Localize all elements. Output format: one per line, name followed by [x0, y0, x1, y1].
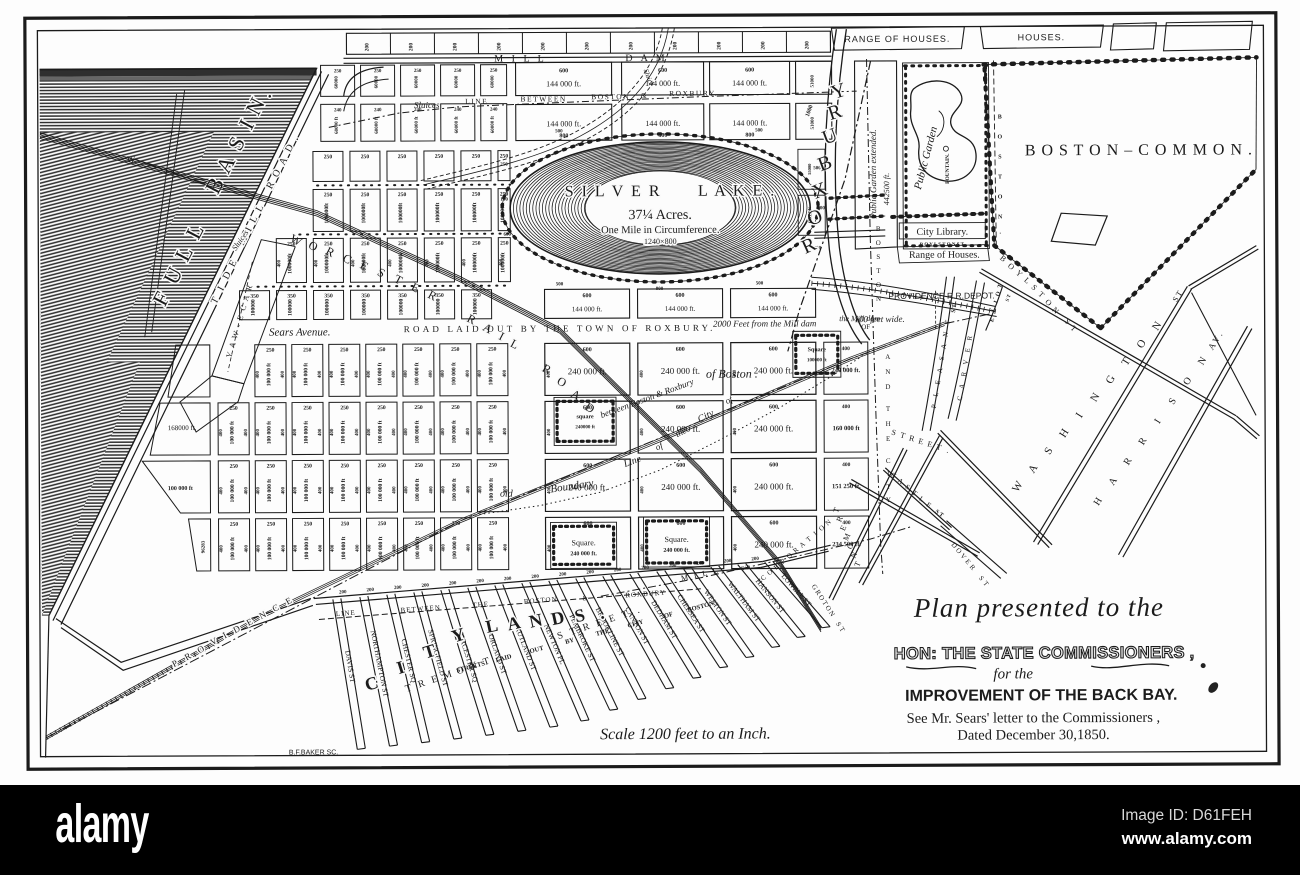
svg-text:HOUSES.: HOUSES.: [1018, 32, 1066, 42]
svg-text:250: 250: [341, 521, 350, 527]
svg-text:alamy: alamy: [55, 793, 149, 854]
svg-text:O: O: [876, 239, 881, 247]
svg-text:400: 400: [219, 429, 224, 437]
svg-text:400: 400: [244, 486, 249, 494]
svg-text:B.F.BAKER SC.: B.F.BAKER SC.: [289, 749, 338, 756]
svg-text:400: 400: [257, 544, 262, 552]
svg-text:400: 400: [392, 428, 397, 436]
svg-text:400: 400: [640, 428, 645, 436]
svg-text:400: 400: [842, 346, 851, 352]
svg-text:400: 400: [319, 544, 324, 552]
svg-text:600: 600: [745, 68, 754, 74]
svg-text:400: 400: [503, 427, 508, 435]
svg-text:250: 250: [266, 406, 275, 412]
svg-text:60000: 60000: [491, 75, 496, 88]
svg-text:600: 600: [583, 347, 592, 353]
svg-text:400: 400: [548, 544, 553, 552]
svg-text:250: 250: [334, 69, 342, 74]
svg-text:100 000 ft: 100 000 ft: [267, 537, 273, 560]
svg-text:400: 400: [281, 370, 286, 378]
svg-text:400: 400: [640, 486, 645, 494]
svg-text:250: 250: [229, 406, 238, 412]
svg-text:144 000 ft.: 144 000 ft.: [546, 119, 581, 128]
svg-text:100 000 ft: 100 000 ft: [168, 486, 193, 492]
svg-text:250: 250: [303, 405, 312, 411]
svg-text:See Mr. Sears' letter to the C: See Mr. Sears' letter to the Commissione…: [907, 710, 1161, 727]
svg-text:400: 400: [504, 543, 509, 551]
svg-text:250: 250: [377, 405, 386, 411]
svg-text:200: 200: [496, 42, 502, 51]
svg-text:100000: 100000: [251, 299, 257, 316]
svg-text:400: 400: [318, 428, 323, 436]
svg-text:400: 400: [393, 544, 398, 552]
svg-text:400: 400: [367, 428, 372, 436]
svg-text:H: H: [886, 420, 891, 428]
svg-text:One Mile in Circumference.: One Mile in Circumference.: [601, 225, 719, 237]
svg-text:400: 400: [404, 486, 409, 494]
svg-text:250: 250: [489, 463, 498, 469]
svg-text:1240×800: 1240×800: [644, 237, 677, 246]
svg-text:100 000 ft: 100 000 ft: [304, 479, 310, 502]
svg-text:Scale 1200 feet to an Inch.: Scale 1200 feet to an Inch.: [600, 725, 771, 743]
svg-text:60000: 60000: [415, 75, 420, 88]
svg-text:the Mill dam: the Mill dam: [839, 314, 880, 323]
svg-text:250: 250: [361, 154, 370, 160]
svg-text:250: 250: [378, 463, 387, 469]
svg-text:400: 400: [430, 544, 435, 552]
svg-text:100000: 100000: [399, 298, 405, 315]
svg-text:400: 400: [466, 370, 471, 378]
svg-text:500: 500: [755, 129, 763, 134]
svg-text:O: O: [998, 194, 1003, 200]
svg-text:100 000 ft: 100 000 ft: [489, 536, 495, 559]
svg-text:250: 250: [340, 347, 349, 353]
svg-text:250: 250: [415, 521, 424, 527]
svg-text:GREEN: GREEN: [807, 207, 812, 224]
svg-text:400: 400: [294, 544, 299, 552]
svg-text:400: 400: [318, 370, 323, 378]
svg-text:D: D: [885, 383, 890, 391]
svg-text:250: 250: [267, 522, 276, 528]
svg-text:OF: OF: [861, 323, 870, 331]
svg-text:S I L V E R: S I L V E R: [565, 183, 662, 200]
svg-text:LINE: LINE: [336, 609, 356, 618]
svg-text:Plan presented to the: Plan presented to the: [913, 592, 1164, 623]
svg-text:350: 350: [472, 293, 481, 299]
svg-text:400: 400: [404, 370, 409, 378]
svg-text:400: 400: [367, 486, 372, 494]
svg-text:240 000 ft.: 240 000 ft.: [661, 482, 700, 492]
svg-text:400: 400: [368, 544, 373, 552]
svg-text:442500 ft.: 442500 ft.: [882, 173, 891, 205]
svg-text:100 000 ft: 100 000 ft: [452, 536, 458, 559]
svg-text:250: 250: [500, 154, 509, 160]
svg-text:250: 250: [489, 521, 498, 527]
svg-text:600: 600: [676, 463, 685, 469]
svg-text:250: 250: [488, 347, 497, 353]
svg-text:168000 ft.: 168000 ft.: [168, 424, 197, 432]
svg-text:400: 400: [405, 544, 410, 552]
svg-text:600: 600: [676, 293, 685, 299]
svg-text:T: T: [998, 174, 1002, 180]
svg-text:600: 600: [769, 346, 778, 352]
svg-text:100 000 ft: 100 000 ft: [377, 362, 383, 385]
svg-text:O: O: [998, 134, 1003, 140]
svg-text:City Library.: City Library.: [916, 227, 968, 238]
svg-text:200: 200: [452, 42, 458, 51]
svg-text:100 000 ft: 100 000 ft: [489, 478, 495, 501]
svg-text:200: 200: [614, 568, 622, 574]
svg-text:400: 400: [429, 486, 434, 494]
svg-text:500: 500: [555, 129, 563, 134]
svg-text:160 000 ft: 160 000 ft: [833, 425, 861, 432]
svg-text:for the: for the: [993, 666, 1033, 682]
svg-text:100000ft: 100000ft: [361, 203, 367, 224]
svg-text:400: 400: [367, 370, 372, 378]
svg-text:500: 500: [756, 282, 764, 287]
svg-text:100 000 ft: 100 000 ft: [488, 362, 494, 385]
svg-text:Sluices: Sluices: [414, 100, 440, 110]
svg-text:200: 200: [760, 41, 766, 50]
svg-text:100000: 100000: [288, 299, 294, 316]
svg-text:A: A: [885, 353, 890, 361]
svg-text:250: 250: [398, 192, 407, 198]
svg-text:240 000 ft.: 240 000 ft.: [754, 481, 793, 491]
svg-text:400: 400: [355, 428, 360, 436]
svg-text:100 000 ft: 100 000 ft: [452, 478, 458, 501]
svg-text:100 000 ft: 100 000 ft: [303, 363, 309, 386]
svg-text:100 000 ft: 100 000 ft: [415, 478, 421, 501]
svg-text:250: 250: [451, 347, 460, 353]
svg-text:200: 200: [504, 577, 512, 583]
svg-text:240 000 ft.: 240 000 ft.: [661, 366, 700, 376]
svg-text:100000ft: 100000ft: [398, 203, 404, 224]
svg-text:HON: THE STATE COMMISSIONERS ,: HON: THE STATE COMMISSIONERS ,: [894, 644, 1195, 663]
svg-text:100000ft: 100000ft: [287, 253, 293, 274]
svg-text:400: 400: [467, 544, 472, 552]
svg-text:100 000 ft: 100 000 ft: [340, 363, 346, 386]
svg-text:250: 250: [374, 69, 382, 74]
svg-text:400: 400: [441, 428, 446, 436]
svg-text:400: 400: [256, 428, 261, 436]
svg-text:200: 200: [421, 583, 429, 589]
svg-text:200: 200: [804, 41, 810, 50]
svg-text:51000: 51000: [811, 75, 816, 88]
svg-text:250: 250: [435, 154, 444, 160]
svg-text:400: 400: [441, 486, 446, 494]
svg-text:Square.: Square.: [664, 535, 688, 544]
svg-text:100000ft: 100000ft: [324, 253, 330, 274]
svg-text:400: 400: [388, 259, 393, 267]
svg-text:60000: 60000: [375, 75, 380, 88]
svg-text:250: 250: [341, 463, 350, 469]
svg-text:400: 400: [547, 428, 552, 436]
svg-text:100 000 ft: 100 000 ft: [414, 362, 420, 385]
svg-text:200: 200: [669, 563, 677, 569]
svg-text:100000ft: 100000ft: [398, 253, 404, 274]
svg-text:400: 400: [734, 543, 739, 551]
svg-text:600: 600: [676, 405, 685, 411]
svg-text:144 000 ft.: 144 000 ft.: [732, 78, 767, 87]
svg-text:600: 600: [769, 404, 778, 410]
svg-text:400: 400: [330, 428, 335, 436]
svg-text:250: 250: [414, 69, 422, 74]
svg-text:350: 350: [361, 293, 370, 299]
svg-text:100 000 ft: 100 000 ft: [230, 421, 236, 444]
svg-text:100000ft: 100000ft: [472, 202, 478, 223]
svg-text:400: 400: [314, 259, 319, 267]
svg-text:350: 350: [324, 293, 333, 299]
svg-text:100 000 ft: 100 000 ft: [230, 479, 236, 502]
svg-text:400: 400: [641, 544, 646, 552]
svg-text:of Boston .: of Boston .: [706, 367, 758, 381]
svg-text:250: 250: [361, 241, 370, 247]
svg-text:400: 400: [330, 486, 335, 494]
svg-text:200: 200: [531, 574, 539, 580]
svg-text:400: 400: [478, 369, 483, 377]
svg-text:250: 250: [378, 521, 387, 527]
svg-text:51000: 51000: [811, 117, 816, 130]
svg-text:200: 200: [408, 43, 414, 52]
svg-text:400: 400: [356, 544, 361, 552]
svg-text:200: 200: [476, 579, 484, 585]
svg-text:240 000 ft.: 240 000 ft.: [754, 365, 793, 375]
svg-text:L A K E .: L A K E .: [698, 182, 776, 199]
svg-text:96283: 96283: [202, 540, 207, 553]
svg-text:250: 250: [324, 192, 333, 198]
svg-text:600: 600: [770, 520, 779, 526]
svg-text:350: 350: [287, 294, 296, 300]
svg-text:200: 200: [586, 570, 594, 576]
svg-text:400: 400: [478, 485, 483, 493]
svg-text:250: 250: [266, 348, 275, 354]
svg-text:250: 250: [324, 241, 333, 247]
svg-text:200: 200: [716, 41, 722, 50]
svg-text:200: 200: [751, 557, 759, 563]
svg-text:400: 400: [547, 370, 552, 378]
svg-text:500: 500: [556, 282, 564, 287]
svg-text:E: E: [886, 435, 890, 443]
svg-text:400: 400: [318, 486, 323, 494]
svg-text:250: 250: [287, 242, 296, 248]
svg-text:100 000 ft: 100 000 ft: [304, 537, 310, 560]
svg-text:Public Garden extended.: Public Garden extended.: [868, 129, 878, 219]
svg-text:BETWEEN: BETWEEN: [521, 94, 567, 103]
svg-text:55000: 55000: [807, 163, 812, 175]
svg-text:400: 400: [293, 370, 298, 378]
svg-text:250: 250: [361, 192, 370, 198]
svg-text:350: 350: [398, 293, 407, 299]
svg-text:250: 250: [414, 405, 423, 411]
svg-text:100 000 ft: 100 000 ft: [489, 420, 495, 443]
svg-text:100000ft: 100000ft: [435, 203, 441, 224]
svg-text:FOUNTAIN.: FOUNTAIN.: [945, 153, 951, 184]
svg-text:200: 200: [449, 581, 457, 587]
svg-text:400: 400: [466, 486, 471, 494]
svg-text:60000 ft: 60000 ft: [455, 116, 460, 133]
svg-text:100 000 ft: 100 000 ft: [378, 536, 384, 559]
svg-text:400: 400: [331, 544, 336, 552]
svg-text:200: 200: [559, 572, 567, 578]
svg-text:100 000 ft: 100 000 ft: [452, 420, 458, 443]
svg-text:400: 400: [355, 486, 360, 494]
svg-text:100000ft: 100000ft: [361, 253, 367, 274]
svg-text:100 000 ft: 100 000 ft: [378, 478, 384, 501]
svg-text:100000: 100000: [436, 298, 442, 315]
svg-text:200: 200: [364, 43, 370, 52]
svg-text:200: 200: [584, 42, 590, 51]
svg-text:250: 250: [414, 347, 423, 353]
svg-text:250: 250: [472, 241, 481, 247]
svg-text:250: 250: [454, 69, 462, 74]
svg-text:400: 400: [282, 544, 287, 552]
svg-text:N: N: [876, 295, 881, 303]
svg-text:B: B: [998, 114, 1002, 120]
svg-text:144 000 ft.: 144 000 ft.: [665, 305, 696, 313]
svg-text:100000: 100000: [325, 299, 331, 316]
svg-text:100 000 ft: 100 000 ft: [341, 421, 347, 444]
svg-text:400: 400: [355, 370, 360, 378]
svg-text:N: N: [998, 214, 1003, 220]
svg-text:200: 200: [339, 590, 347, 596]
svg-text:350: 350: [250, 294, 259, 300]
svg-text:250: 250: [435, 192, 444, 198]
svg-text:400: 400: [429, 370, 434, 378]
svg-text:240: 240: [490, 108, 498, 113]
svg-text:B O S T O N – C O M M O N .: B O S T O N – C O M M O N .: [1025, 141, 1253, 159]
svg-text:400: 400: [733, 485, 738, 493]
svg-text:144 000 ft.: 144 000 ft.: [546, 79, 581, 88]
svg-text:ROAD LAID OUT BY THE TOWN OF R: ROAD LAID OUT BY THE TOWN OF ROXBURY.: [404, 323, 716, 334]
svg-text:250: 250: [435, 241, 444, 247]
svg-text:240 000 ft.: 240 000 ft.: [754, 539, 793, 549]
svg-text:Sears Avenue.: Sears Avenue.: [269, 326, 331, 338]
svg-text:100 000 ft: 100 000 ft: [304, 421, 310, 444]
svg-text:200: 200: [696, 561, 704, 567]
svg-text:240 000 ft.: 240 000 ft.: [570, 551, 597, 557]
svg-text:400: 400: [842, 462, 851, 468]
svg-text:T: T: [886, 405, 891, 413]
svg-text:250: 250: [304, 463, 313, 469]
svg-text:www.alamy.com: www.alamy.com: [1121, 829, 1252, 848]
svg-text:250: 250: [267, 464, 276, 470]
svg-text:C: C: [886, 457, 891, 465]
svg-text:200: 200: [641, 566, 649, 572]
svg-text:100000ft: 100000ft: [472, 252, 478, 273]
svg-text:S: S: [876, 253, 880, 261]
svg-text:old: old: [500, 489, 514, 500]
svg-text:600: 600: [769, 462, 778, 468]
svg-text:600: 600: [583, 293, 592, 299]
svg-text:400: 400: [244, 428, 249, 436]
svg-text:250: 250: [472, 192, 481, 198]
svg-text:800: 800: [745, 133, 754, 139]
svg-text:350: 350: [435, 293, 444, 299]
svg-text:200: 200: [366, 588, 374, 594]
svg-text:Square.: Square.: [571, 538, 595, 547]
svg-text:100000ft: 100000ft: [324, 203, 330, 224]
svg-text:60000 ft: 60000 ft: [491, 116, 496, 133]
svg-text:250: 250: [304, 521, 313, 527]
svg-text:400: 400: [733, 427, 738, 435]
svg-text:240 000 ft.: 240 000 ft.: [568, 366, 607, 376]
svg-text:600: 600: [559, 68, 568, 74]
svg-text:400: 400: [499, 258, 504, 266]
svg-text:200: 200: [724, 559, 732, 565]
svg-text:400: 400: [429, 428, 434, 436]
svg-text:240 000 ft.: 240 000 ft.: [663, 548, 690, 554]
svg-text:60000 ft: 60000 ft: [415, 116, 420, 133]
svg-text:600: 600: [676, 347, 685, 353]
svg-text:400: 400: [281, 428, 286, 436]
svg-text:250: 250: [340, 405, 349, 411]
svg-text:100 000 ft: 100 000 ft: [267, 479, 273, 502]
svg-text:ROXBURY.: ROXBURY.: [669, 89, 718, 98]
svg-text:400: 400: [479, 543, 484, 551]
svg-text:400: 400: [392, 486, 397, 494]
svg-text:250: 250: [451, 405, 460, 411]
svg-text:240: 240: [334, 108, 342, 113]
svg-text:240 000 ft.: 240 000 ft.: [754, 423, 793, 433]
svg-text:2000 Feet from the Mill dam: 2000 Feet from the Mill dam: [713, 318, 817, 328]
svg-text:400: 400: [466, 428, 471, 436]
svg-text:250: 250: [324, 154, 333, 160]
svg-text:400: 400: [219, 487, 224, 495]
svg-text:200: 200: [628, 42, 634, 51]
svg-text:250: 250: [303, 347, 312, 353]
svg-text:144 000 ft.: 144 000 ft.: [732, 118, 767, 127]
svg-text:200: 200: [394, 586, 402, 592]
svg-text:Range of Houses.: Range of Houses.: [909, 250, 980, 261]
svg-text:100 000 ft: 100 000 ft: [415, 420, 421, 443]
svg-text:250: 250: [452, 463, 461, 469]
svg-text:60000: 60000: [455, 75, 460, 88]
svg-text:400: 400: [245, 544, 250, 552]
svg-text:400: 400: [256, 486, 261, 494]
svg-text:100000ft: 100000ft: [435, 253, 441, 274]
svg-text:250: 250: [490, 69, 498, 74]
svg-text:Image ID: D61FEH: Image ID: D61FEH: [1121, 807, 1252, 824]
svg-text:400: 400: [478, 427, 483, 435]
svg-text:O: O: [876, 281, 881, 289]
svg-text:square: square: [576, 414, 594, 420]
svg-text:100000: 100000: [473, 298, 479, 315]
svg-text:250: 250: [452, 521, 461, 527]
svg-text:250: 250: [230, 522, 239, 528]
svg-text:100 000 ft: 100 000 ft: [378, 420, 384, 443]
svg-text:240: 240: [374, 108, 382, 113]
svg-text:100 000 ft: 100 000 ft: [341, 537, 347, 560]
svg-text:250: 250: [398, 154, 407, 160]
svg-text:N: N: [885, 368, 890, 376]
svg-text:250: 250: [377, 347, 386, 353]
svg-text:250: 250: [230, 464, 239, 470]
svg-text:200: 200: [672, 41, 678, 50]
svg-text:100 000 ft: 100 000 ft: [267, 421, 273, 444]
svg-text:144 000 ft.: 144 000 ft.: [758, 304, 789, 312]
svg-text:400: 400: [220, 545, 225, 553]
svg-text:100 000 ft: 100 000 ft: [451, 362, 457, 385]
svg-text:600: 600: [583, 463, 592, 469]
svg-text:100 000 ft: 100 000 ft: [415, 536, 421, 559]
svg-text:LINE: LINE: [465, 97, 488, 106]
svg-text:400: 400: [293, 486, 298, 494]
svg-text:250: 250: [488, 405, 497, 411]
svg-text:100 000 ft: 100 000 ft: [266, 363, 272, 386]
svg-text:400: 400: [503, 369, 508, 377]
svg-text:250: 250: [415, 463, 424, 469]
svg-text:Dated December 30,1850.: Dated December 30,1850.: [957, 727, 1109, 744]
